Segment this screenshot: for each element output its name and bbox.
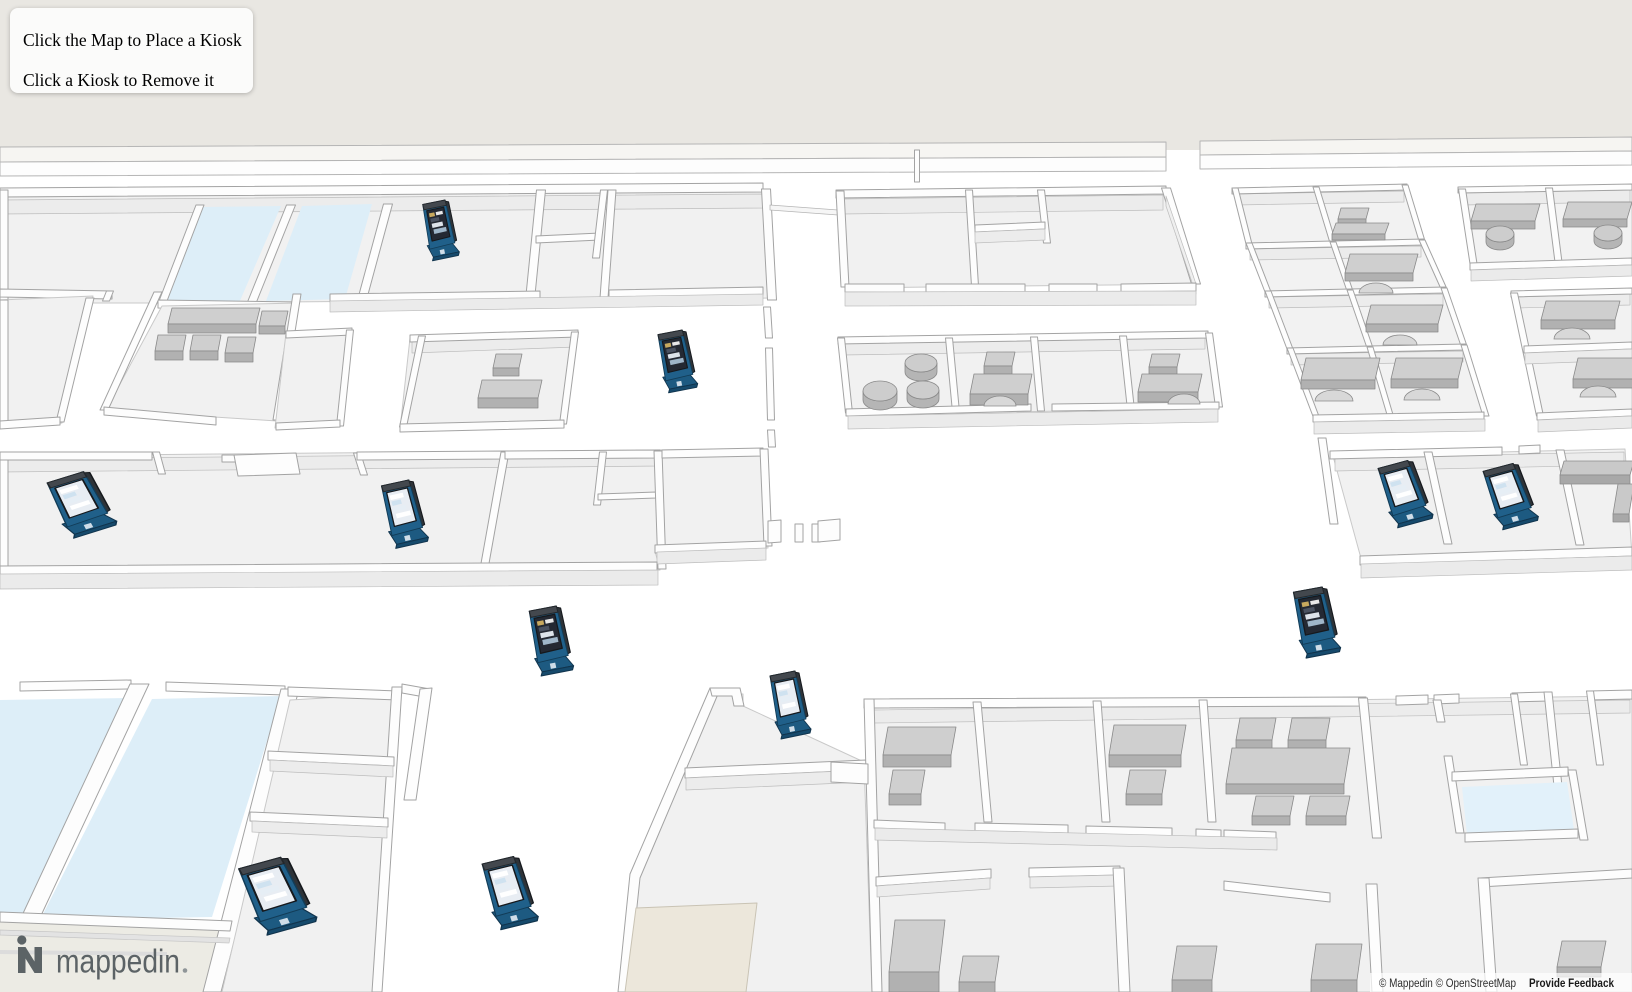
svg-text:mappedin: mappedin xyxy=(56,943,180,980)
svg-text:Provide Feedback: Provide Feedback xyxy=(1529,978,1615,990)
svg-text:© Mappedin © OpenStreetMap: © Mappedin © OpenStreetMap xyxy=(1379,978,1516,990)
